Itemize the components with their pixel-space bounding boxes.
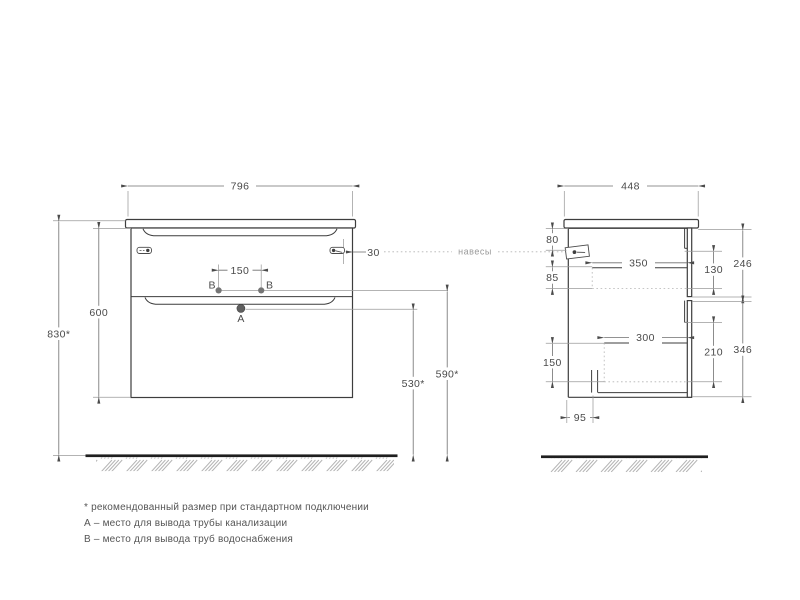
side-pipe-slot xyxy=(592,370,598,393)
total-height-dimension: 830* xyxy=(44,221,126,456)
side-drawer1-box xyxy=(592,268,687,289)
bracket-dot-icon xyxy=(146,249,149,252)
front-width-label: 796 xyxy=(231,181,250,193)
drawer2-depth-label: 300 xyxy=(636,332,655,344)
front-countertop xyxy=(126,220,356,229)
supply-height-label: 590* xyxy=(436,368,459,380)
side-view: 448 xyxy=(540,180,757,473)
front-left-bracket xyxy=(137,247,152,253)
label-b-right: B xyxy=(266,280,273,292)
drawer2-front-label: 346 xyxy=(733,344,752,356)
pipe-offset-label: 95 xyxy=(574,412,586,424)
bracket-dot-icon xyxy=(332,249,335,252)
drawer1-front-dimension: 246 xyxy=(692,230,757,297)
side-floor-line xyxy=(541,455,708,458)
note-point-b: B – место для вывода труб водоснабжения xyxy=(84,533,293,545)
note-recommended: * рекомендованный размер при стандартном… xyxy=(84,502,369,513)
hangers-annotation: навесы xyxy=(384,247,566,257)
side-drawer2-box xyxy=(604,343,687,382)
hanger-gap-dimension: 85 xyxy=(542,267,593,289)
note-point-a: А – место для вывода трубы канализации xyxy=(84,517,287,529)
side-drawer1-front xyxy=(687,228,691,297)
total-height-label: 830* xyxy=(47,328,70,340)
hanger-gap-label: 85 xyxy=(546,272,558,284)
drawer1-inner-label: 130 xyxy=(704,264,723,276)
drawer1-depth-label: 350 xyxy=(629,257,648,269)
drain-point-a xyxy=(237,304,245,312)
side-depth-dimension: 448 xyxy=(564,180,698,217)
side-floor-hatch xyxy=(549,459,702,473)
hole-spacing-label: 150 xyxy=(231,265,250,277)
front-floor-line xyxy=(86,454,398,457)
drawer2-depth-dimension: 300 xyxy=(604,331,687,344)
bracket-offset-label: 30 xyxy=(367,247,379,259)
front-view: 796 30 н xyxy=(44,180,566,472)
bottom-section-dimension: 150 xyxy=(540,343,604,382)
front-floor-hatch xyxy=(96,458,394,472)
side-depth-label: 448 xyxy=(621,181,640,193)
hanger-top-dimension: 80 xyxy=(542,229,569,251)
vanity-technical-drawing: 796 30 н xyxy=(0,0,800,600)
footnotes: * рекомендованный размер при стандартном… xyxy=(84,502,369,545)
side-bracket xyxy=(565,245,589,259)
side-countertop xyxy=(564,220,699,229)
drain-height-dimension: 530* xyxy=(399,310,428,454)
pipe-offset-dimension: 95 xyxy=(567,396,593,425)
front-height-dimension: 600 xyxy=(86,228,131,397)
supply-height-dimension: 590* xyxy=(433,292,462,455)
hanger-top-label: 80 xyxy=(546,234,558,246)
drawer2-inner-label: 210 xyxy=(704,347,723,359)
drain-height-label: 530* xyxy=(402,378,425,390)
hangers-label: навесы xyxy=(458,247,492,257)
drawer1-front-label: 246 xyxy=(733,258,752,270)
supply-point-b-left xyxy=(216,287,222,293)
label-b-left: B xyxy=(208,280,215,292)
cabinet-height-label: 600 xyxy=(89,307,108,319)
side-drawer2-front xyxy=(687,301,691,398)
supply-point-b-right xyxy=(258,287,264,293)
bottom-section-label: 150 xyxy=(543,357,562,369)
front-width-dimension: 796 xyxy=(128,180,353,217)
label-a: A xyxy=(237,313,244,325)
